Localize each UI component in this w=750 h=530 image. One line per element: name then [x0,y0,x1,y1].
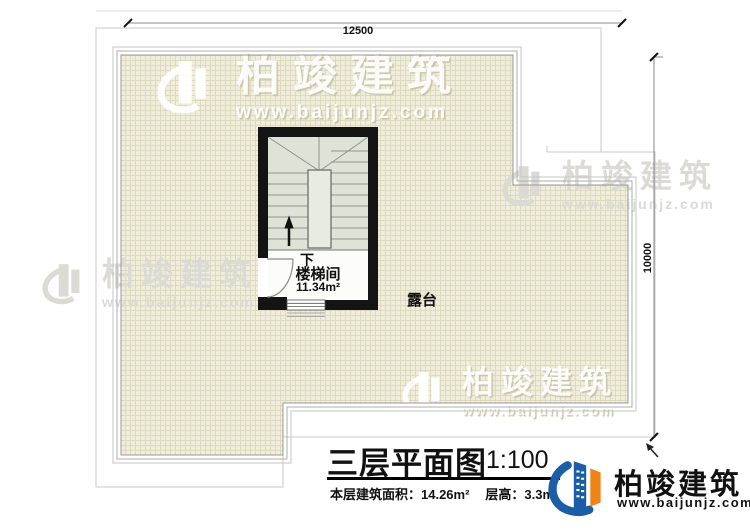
dimension-lines [124,19,663,441]
terrace-label: 露台 [407,289,437,310]
door-opening [258,258,268,297]
plan-scale: 1:100 [486,446,549,475]
floor-area-info: 本层建筑面积：14.26m² [330,487,469,502]
stairwell-band [308,170,331,248]
floorplan-page: 柏竣建筑 www.baijunjz.com 柏竣建筑 www.baijunjz.… [0,0,750,530]
floor-height-info: 层高：3.3m [485,487,554,502]
brand-url: www.baijunjz.com [617,495,750,510]
stair-area-label: 11.34m² [268,280,368,294]
title-underline [327,477,560,480]
dimension-right-label: 10000 [642,228,654,288]
brand-logo-icon [547,455,613,521]
stair-window [287,300,325,317]
mouse-cursor [646,443,658,457]
plan-info: 本层建筑面积：14.26m²层高：3.3m [330,484,570,503]
dimension-top-label: 12500 [330,25,386,37]
